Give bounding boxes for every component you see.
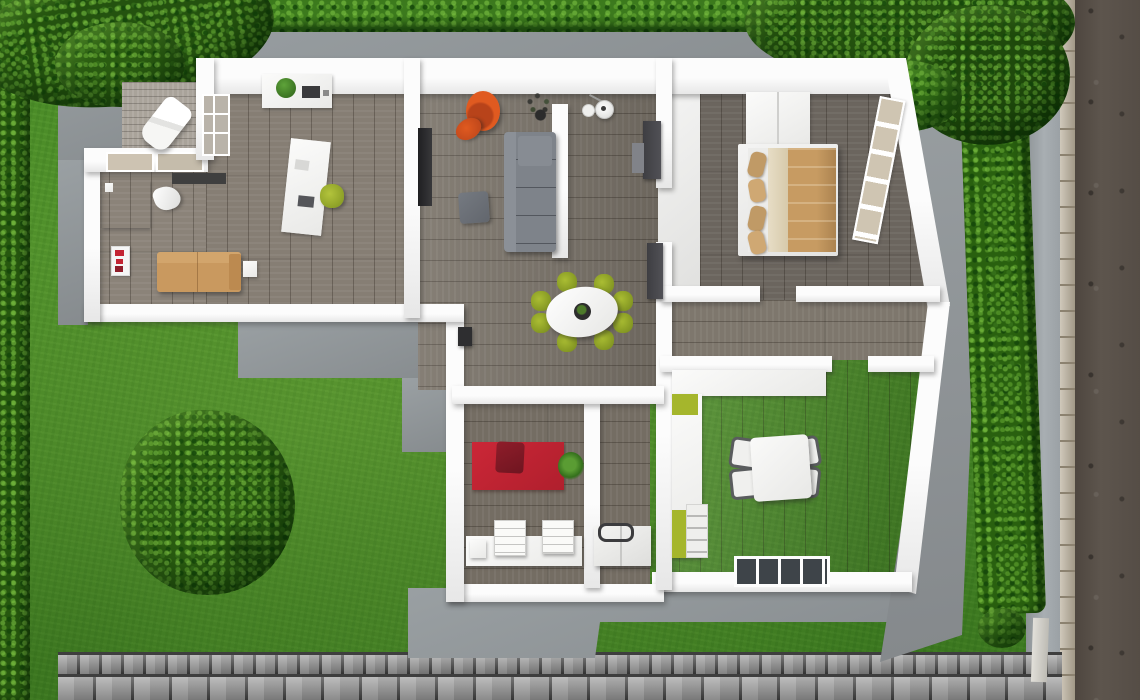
shelf-plant: [276, 78, 296, 98]
road: [1075, 0, 1140, 700]
cobblestone-path: [58, 652, 1062, 700]
utility-red-armchair: [495, 441, 525, 473]
office-sofa-armrest: [229, 254, 241, 290]
round-tree-shadow-spot: [215, 520, 270, 570]
utility-drawer-chest: [494, 520, 526, 556]
office-bookshelf: [102, 180, 150, 228]
living-tv-panel: [418, 128, 432, 206]
office-wall-poster: [111, 246, 130, 276]
utility-drawer-chest: [542, 520, 574, 554]
office-window-north: [202, 94, 230, 156]
floor-plan-scene: [0, 0, 1140, 700]
living-ottoman: [458, 191, 490, 224]
round-tree: [120, 410, 295, 595]
living-lamp-base: [582, 104, 595, 117]
office-side-table: [243, 261, 257, 277]
wall-heater: [458, 327, 472, 346]
desk-laptop: [297, 195, 314, 208]
kitchen-accent-lime: [672, 394, 698, 415]
utility-small-item: [470, 540, 486, 558]
living-lamp-dot: [601, 106, 606, 111]
hedge-left: [0, 0, 30, 700]
office-desk-chair: [320, 184, 344, 208]
shrub-bottom-right: [978, 608, 1026, 648]
room-corridor-floor: [658, 300, 942, 360]
wall-corridor-top-b: [796, 286, 940, 302]
office-wall-shelf: [262, 74, 332, 108]
bed-blanket: [788, 148, 836, 252]
fence-post: [1031, 618, 1049, 683]
shelf-item: [323, 90, 329, 96]
bed-sheet-fold: [768, 148, 790, 252]
utility-plant: [558, 452, 584, 480]
living-tall-cabinet-b: [647, 243, 663, 299]
wall-corridor-bottom-b: [868, 356, 934, 372]
shelf-printer: [302, 86, 320, 98]
dining-centerpiece-plant: [574, 303, 591, 320]
office-window-west: [106, 152, 154, 172]
living-twig-plant: [524, 92, 554, 124]
kitchen-counter-top: [672, 370, 826, 396]
wall-dining-bottom: [452, 386, 664, 404]
wall-left-vertical: [446, 306, 464, 602]
wall-bottom-center: [446, 584, 664, 602]
desk-paper: [294, 159, 309, 171]
bedroom-wardrobe: [746, 92, 810, 144]
living-sofa-cushion: [518, 136, 552, 166]
living-cabinet-small: [632, 143, 644, 173]
storage-chest-handle: [598, 523, 634, 542]
living-tall-cabinet-a: [643, 121, 661, 179]
kitchen-oven-stack: [686, 504, 708, 558]
cobblestone-row: [58, 677, 1062, 700]
wall-office-left: [84, 156, 100, 322]
kitchen-table: [750, 434, 812, 502]
wall-corridor-top-a: [660, 286, 760, 302]
kitchen-window: [734, 556, 830, 587]
office-door-mat: [172, 173, 226, 184]
